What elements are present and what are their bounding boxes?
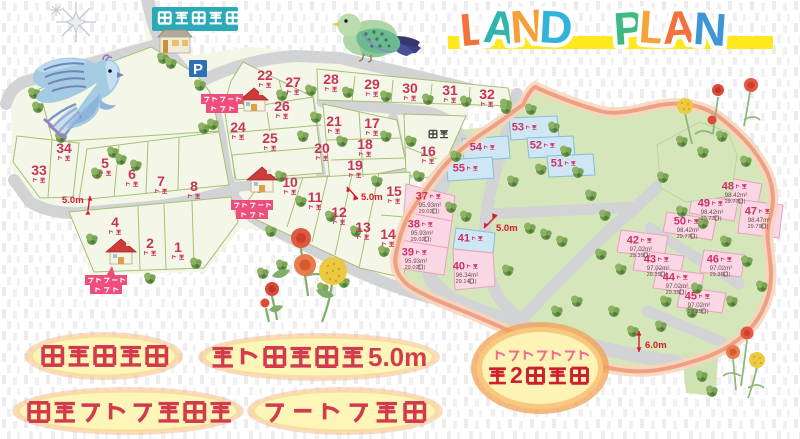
svg-text:42: 42 [627,235,639,247]
svg-text:46: 46 [707,254,719,266]
svg-text:29.77(: 29.77( [677,234,693,240]
svg-text:6.0m: 6.0m [645,340,667,351]
svg-text:21: 21 [326,113,342,129]
svg-text:5.0m: 5.0m [361,192,383,203]
svg-text:7: 7 [157,173,165,189]
svg-text:40: 40 [453,261,465,273]
svg-text:98.42m²: 98.42m² [701,209,724,216]
svg-text:29.35(: 29.35( [688,309,704,315]
svg-text:31: 31 [442,82,458,98]
svg-text:95.93m²: 95.93m² [419,202,442,209]
svg-text:98.42m²: 98.42m² [677,227,700,234]
svg-text:97.02m²: 97.02m² [688,302,711,309]
svg-text:17: 17 [364,115,380,131]
svg-text:): ) [729,272,731,278]
svg-text:19: 19 [347,157,363,173]
svg-text:29.77(: 29.77( [725,199,741,205]
svg-text:54: 54 [470,142,483,154]
svg-text:): ) [767,224,769,230]
svg-text:95.93m²: 95.93m² [405,258,428,265]
svg-text:D: D [538,0,574,54]
svg-text:29.02(: 29.02( [405,265,421,271]
svg-text:5.0m: 5.0m [62,195,84,206]
svg-text:52: 52 [530,140,542,152]
svg-text:13: 13 [355,219,371,235]
svg-text:15: 15 [386,183,402,199]
svg-text:44: 44 [663,272,676,284]
svg-text:): ) [707,309,709,315]
svg-text:41: 41 [458,233,470,245]
svg-text:34: 34 [56,140,72,156]
svg-text:29.35(: 29.35( [710,272,726,278]
svg-text:): ) [424,265,426,271]
svg-text:4: 4 [111,214,119,230]
svg-text:97.02m²: 97.02m² [630,246,653,253]
svg-text:49: 49 [698,198,710,210]
svg-text:8: 8 [190,178,198,194]
svg-text:29.02(: 29.02( [419,209,435,215]
svg-text:25: 25 [262,130,278,146]
svg-text:38: 38 [408,219,420,231]
svg-text:11: 11 [308,189,323,205]
svg-text:24: 24 [230,119,246,135]
svg-text:): ) [720,216,722,222]
svg-text:95.93m²: 95.93m² [411,230,434,237]
svg-text:22: 22 [257,67,273,83]
svg-text:10: 10 [282,174,298,190]
svg-text:): ) [475,279,477,285]
svg-text:47: 47 [745,206,757,218]
svg-text:29.79(: 29.79( [748,224,764,230]
svg-text:29.02(: 29.02( [411,237,427,243]
svg-text:26: 26 [274,98,290,114]
svg-text:): ) [696,234,698,240]
svg-text:N: N [692,2,729,56]
svg-text:98.42m²: 98.42m² [725,192,748,199]
svg-text:51: 51 [551,158,563,170]
svg-text:97.02m²: 97.02m² [710,265,733,272]
svg-text:18: 18 [357,136,373,152]
svg-text:29.35(: 29.35( [666,290,682,296]
svg-text:37: 37 [416,191,428,203]
svg-text:43: 43 [644,254,656,266]
svg-text:55: 55 [453,163,465,175]
svg-text:53: 53 [512,122,524,134]
svg-text:50: 50 [674,216,686,228]
svg-text:29.35(: 29.35( [647,272,663,278]
svg-text:5.0m: 5.0m [496,223,518,234]
svg-text:14: 14 [380,226,396,242]
svg-text:39: 39 [402,247,414,259]
svg-text:6: 6 [128,166,136,182]
svg-text:33: 33 [31,162,47,178]
svg-text:): ) [744,199,746,205]
svg-text:5.0m: 5.0m [368,342,427,372]
svg-text:29.14(: 29.14( [456,279,472,285]
svg-text:): ) [430,237,432,243]
svg-text:P: P [193,61,203,78]
svg-text:2: 2 [146,235,154,251]
svg-text:97.02m²: 97.02m² [666,283,689,290]
svg-text:1: 1 [174,239,182,255]
svg-text:45: 45 [685,291,697,303]
svg-text:98.47m²: 98.47m² [748,217,771,224]
svg-text:29.77(: 29.77( [701,216,717,222]
svg-text:5: 5 [101,155,109,171]
svg-text:20: 20 [314,140,330,156]
svg-text:28: 28 [323,71,339,87]
svg-text:48: 48 [722,181,734,193]
svg-text:27: 27 [285,74,301,90]
svg-text:32: 32 [479,86,495,102]
svg-text:): ) [438,209,440,215]
svg-text:2: 2 [510,362,523,388]
svg-text:12: 12 [331,204,347,220]
svg-text:16: 16 [420,143,436,159]
svg-text:29: 29 [364,76,380,92]
svg-text:96.34m²: 96.34m² [456,272,479,279]
svg-text:30: 30 [402,80,418,96]
